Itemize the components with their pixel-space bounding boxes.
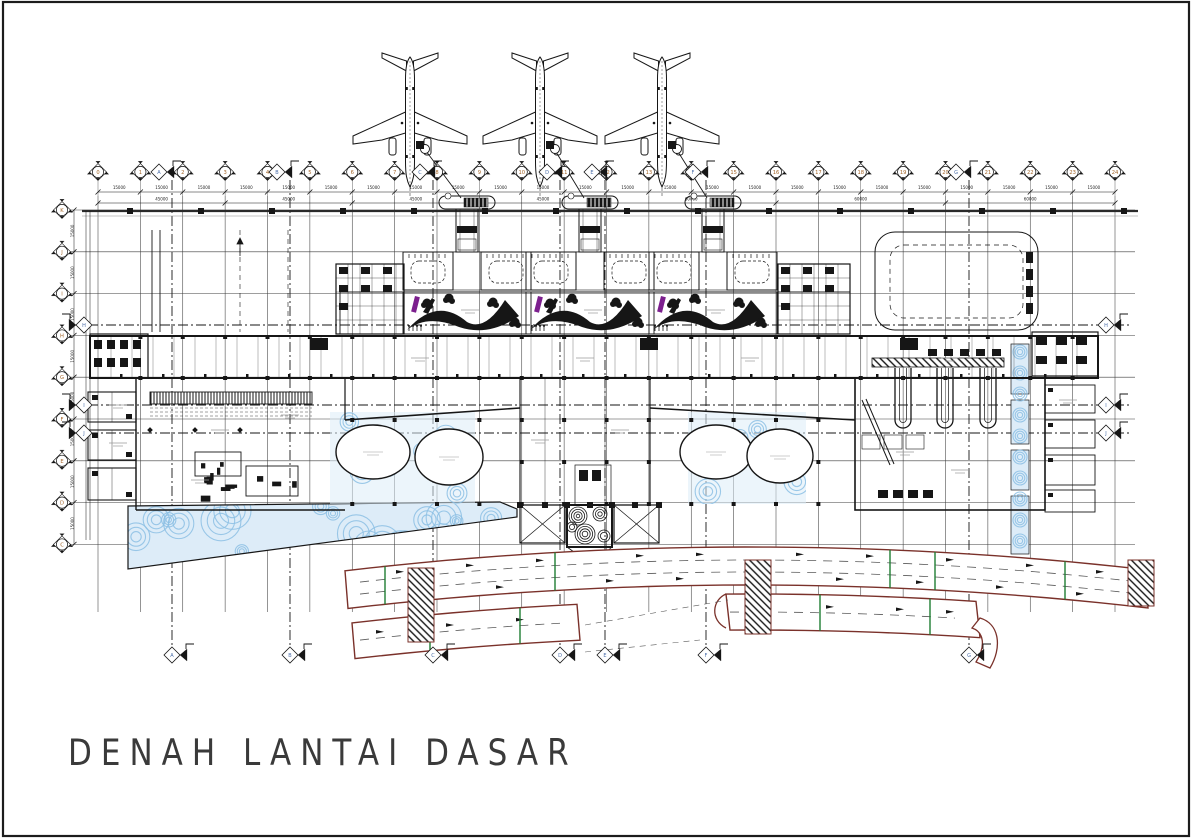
svg-text:15000: 15000 xyxy=(791,185,804,190)
svg-text:J: J xyxy=(1104,431,1106,437)
svg-text:G: G xyxy=(60,375,64,381)
expansion-joint-flag: F xyxy=(698,644,728,663)
svg-text:15000: 15000 xyxy=(833,185,846,190)
svg-text:21: 21 xyxy=(985,170,992,176)
svg-text:15000: 15000 xyxy=(70,266,75,279)
svg-text:23: 23 xyxy=(1069,170,1076,176)
svg-text:E: E xyxy=(590,170,593,176)
expansion-joint-flag: G xyxy=(948,161,978,180)
expansion-joint-flag: I xyxy=(1098,394,1128,413)
svg-text:15000: 15000 xyxy=(748,185,761,190)
svg-text:J: J xyxy=(82,431,84,437)
drawing-sheet: 1500015000150001500015000150001500015000… xyxy=(0,0,1192,839)
svg-text:8: 8 xyxy=(435,170,438,176)
svg-text:15000: 15000 xyxy=(494,185,507,190)
svg-text:19: 19 xyxy=(900,170,907,176)
svg-text:15000: 15000 xyxy=(452,185,465,190)
svg-text:D: D xyxy=(60,501,64,507)
expansion-joint-flag: H xyxy=(62,314,92,333)
svg-text:60000: 60000 xyxy=(854,197,867,202)
svg-text:15000: 15000 xyxy=(918,185,931,190)
svg-text:15000: 15000 xyxy=(706,185,719,190)
svg-text:C: C xyxy=(431,653,435,659)
expansion-joint-flag: H xyxy=(1098,314,1128,333)
svg-text:15000: 15000 xyxy=(537,185,550,190)
svg-text:22: 22 xyxy=(1027,170,1034,176)
svg-text:F: F xyxy=(705,653,708,659)
svg-text:16: 16 xyxy=(773,170,780,176)
aircraft-3 xyxy=(605,53,719,187)
expansion-joint-flag: B xyxy=(269,161,299,180)
svg-text:15000: 15000 xyxy=(70,308,75,321)
svg-text:15000: 15000 xyxy=(70,517,75,530)
svg-text:6: 6 xyxy=(351,170,354,176)
svg-text:A: A xyxy=(157,170,161,176)
expansion-joint-flag: D xyxy=(552,644,582,663)
svg-text:15000: 15000 xyxy=(876,185,889,190)
svg-text:15000: 15000 xyxy=(155,185,168,190)
svg-text:20: 20 xyxy=(942,170,949,176)
svg-text:45000: 45000 xyxy=(282,197,295,202)
svg-text:15000: 15000 xyxy=(70,475,75,488)
svg-text:24: 24 xyxy=(1112,170,1119,176)
svg-text:C: C xyxy=(418,170,422,176)
svg-text:H: H xyxy=(82,323,86,329)
svg-text:15000: 15000 xyxy=(325,185,338,190)
svg-text:1: 1 xyxy=(139,170,142,176)
svg-text:45000: 45000 xyxy=(155,197,168,202)
svg-text:15: 15 xyxy=(730,170,737,176)
svg-text:2: 2 xyxy=(181,170,184,176)
svg-text:E: E xyxy=(603,653,606,659)
svg-text:H: H xyxy=(1104,323,1108,329)
svg-text:15000: 15000 xyxy=(621,185,634,190)
svg-text:A: A xyxy=(170,653,174,659)
svg-text:17: 17 xyxy=(815,170,822,176)
svg-text:15000: 15000 xyxy=(1087,185,1100,190)
svg-text:18: 18 xyxy=(857,170,864,176)
grid-bubbles: 0123456789101112131415161718192021222324… xyxy=(51,161,1125,553)
svg-text:3: 3 xyxy=(223,170,226,176)
svg-text:15000: 15000 xyxy=(960,185,973,190)
svg-text:9: 9 xyxy=(478,170,481,176)
svg-text:15000: 15000 xyxy=(409,185,422,190)
svg-text:45000: 45000 xyxy=(537,197,550,202)
svg-text:15000: 15000 xyxy=(664,185,677,190)
svg-text:I: I xyxy=(1105,403,1106,409)
expansion-joint-flag: A xyxy=(164,644,194,663)
svg-text:E: E xyxy=(60,459,63,465)
svg-text:K: K xyxy=(60,208,64,214)
svg-text:15000: 15000 xyxy=(240,185,253,190)
expansion-joint-flag: E xyxy=(597,644,627,663)
svg-text:I: I xyxy=(83,403,84,409)
svg-text:15000: 15000 xyxy=(1003,185,1016,190)
svg-text:15000: 15000 xyxy=(367,185,380,190)
aircraft-1 xyxy=(353,53,467,187)
curbside-roads xyxy=(345,547,1154,668)
svg-text:C: C xyxy=(60,542,64,548)
svg-text:G: G xyxy=(967,653,971,659)
svg-text:5: 5 xyxy=(308,170,311,176)
svg-text:D: D xyxy=(545,170,549,176)
svg-text:13: 13 xyxy=(646,170,653,176)
svg-text:B: B xyxy=(275,170,279,176)
svg-text:7: 7 xyxy=(393,170,396,176)
svg-text:0: 0 xyxy=(96,170,99,176)
parked-aircraft xyxy=(353,53,719,198)
svg-text:15000: 15000 xyxy=(70,349,75,362)
svg-text:15000: 15000 xyxy=(70,224,75,237)
expansion-joint-flag: B xyxy=(282,644,312,663)
expansion-joint-flag: J xyxy=(1098,422,1128,441)
expansion-joint-flag: A xyxy=(151,161,181,180)
svg-text:15000: 15000 xyxy=(579,185,592,190)
svg-text:60000: 60000 xyxy=(1024,197,1037,202)
svg-text:15000: 15000 xyxy=(113,185,126,190)
svg-text:45000: 45000 xyxy=(409,197,422,202)
svg-text:G: G xyxy=(954,170,958,176)
drawing-title: DENAH LANTAI DASAR xyxy=(68,732,578,774)
svg-text:15000: 15000 xyxy=(1045,185,1058,190)
floor-plan-canvas: 1500015000150001500015000150001500015000… xyxy=(0,0,1192,839)
svg-text:15000: 15000 xyxy=(282,185,295,190)
svg-text:10: 10 xyxy=(518,170,525,176)
svg-text:B: B xyxy=(288,653,292,659)
svg-text:F: F xyxy=(692,170,695,176)
aircraft-2 xyxy=(483,53,597,187)
svg-text:15000: 15000 xyxy=(198,185,211,190)
svg-text:H: H xyxy=(60,333,64,339)
svg-text:D: D xyxy=(558,653,562,659)
